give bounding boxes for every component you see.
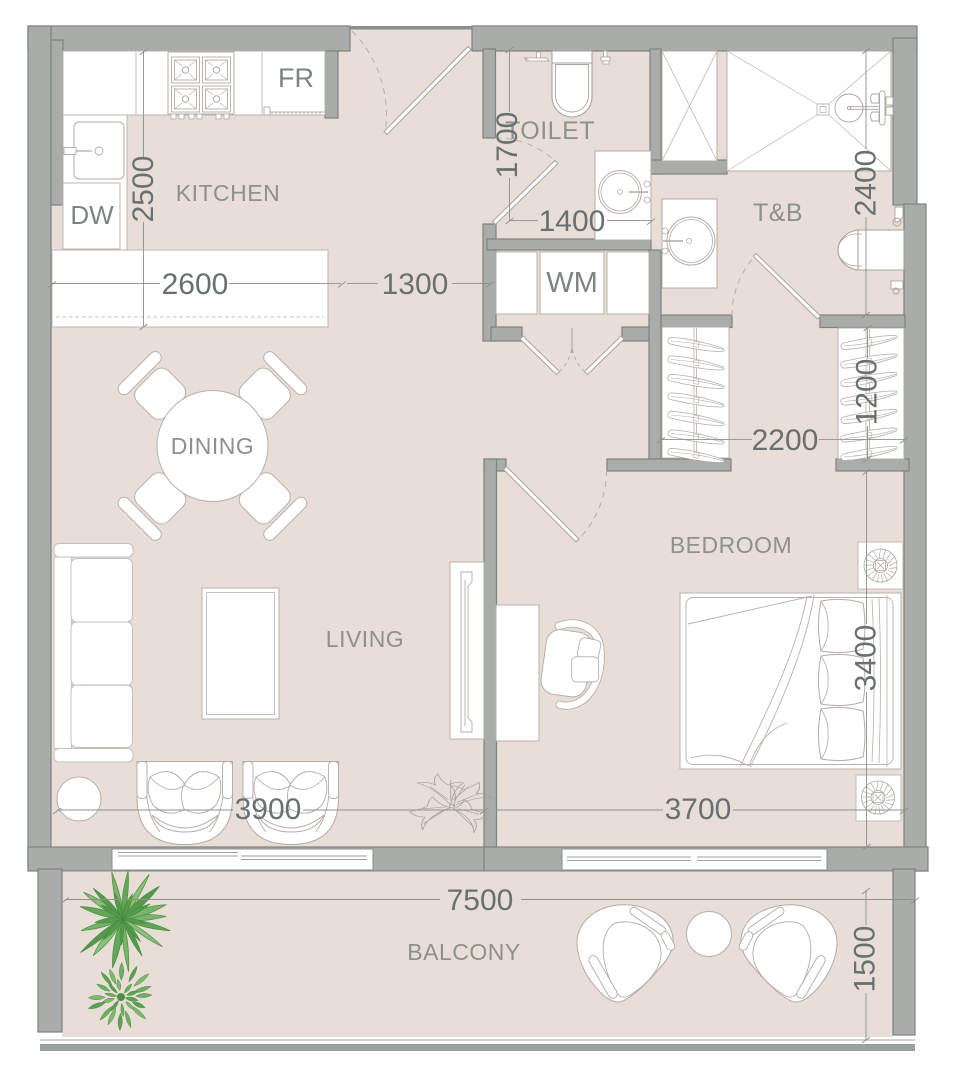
svg-text:DINING: DINING (171, 433, 255, 459)
svg-text:FR: FR (278, 63, 314, 93)
svg-text:LIVING: LIVING (326, 626, 404, 652)
svg-text:3900: 3900 (235, 793, 302, 826)
svg-text:3400: 3400 (850, 625, 883, 692)
svg-text:1300: 1300 (382, 268, 449, 301)
svg-text:1500: 1500 (849, 926, 882, 993)
svg-text:KITCHEN: KITCHEN (176, 180, 280, 206)
svg-text:2400: 2400 (850, 150, 883, 217)
svg-text:2200: 2200 (752, 424, 819, 457)
svg-text:DW: DW (70, 200, 114, 230)
svg-text:1700: 1700 (491, 112, 524, 179)
svg-text:BALCONY: BALCONY (407, 939, 520, 965)
svg-text:1400: 1400 (539, 205, 606, 238)
svg-text:T&B: T&B (753, 199, 803, 227)
svg-text:7500: 7500 (447, 884, 514, 917)
svg-text:BEDROOM: BEDROOM (670, 532, 792, 558)
svg-text:1200: 1200 (851, 359, 884, 426)
svg-text:2600: 2600 (162, 268, 229, 301)
svg-text:WM: WM (546, 267, 598, 299)
svg-text:3700: 3700 (665, 793, 732, 826)
svg-text:2500: 2500 (127, 156, 160, 223)
